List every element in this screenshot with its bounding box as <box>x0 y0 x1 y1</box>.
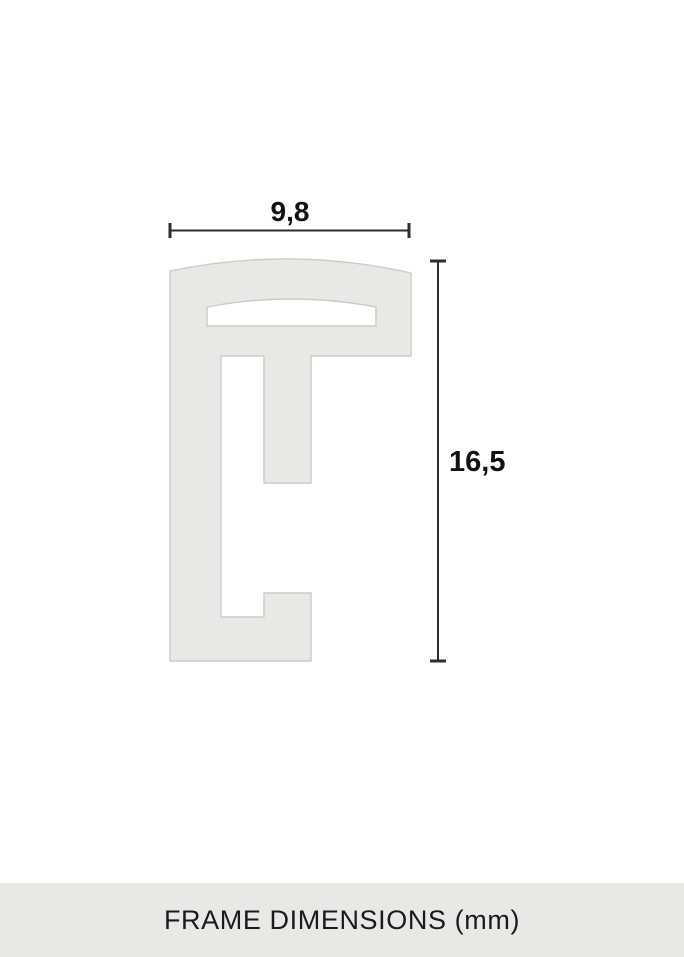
frame-profile-diagram: 9,8 16,5 <box>0 0 684 883</box>
footer-caption: FRAME DIMENSIONS (mm) <box>164 905 520 936</box>
frame-dimensions-figure: 9,8 16,5 FRAME DIMENSIONS (mm) <box>0 0 684 957</box>
profile-slot-cutout <box>207 299 376 326</box>
width-dimension: 9,8 <box>170 196 409 238</box>
footer-caption-bar: FRAME DIMENSIONS (mm) <box>0 883 684 957</box>
width-dimension-label: 9,8 <box>271 196 310 227</box>
height-dimension-label: 16,5 <box>449 446 505 478</box>
height-dimension-line <box>430 261 446 661</box>
height-dimension: 16,5 <box>430 261 505 661</box>
